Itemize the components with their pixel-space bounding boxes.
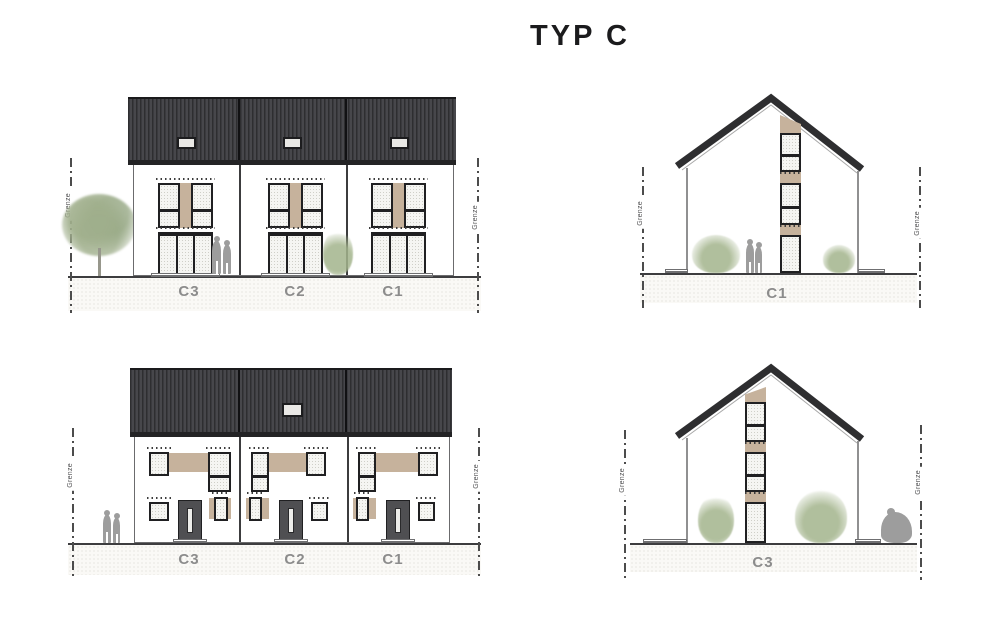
window-pane-divider — [252, 475, 268, 478]
glass-door — [780, 235, 801, 273]
dimension-ticks — [745, 442, 766, 444]
gable-elevation-view-c1: Grenze Grenze C1 — [615, 90, 925, 322]
dimension-ticks — [369, 227, 428, 229]
glass-panel — [195, 236, 211, 273]
unit-label: C3 — [745, 554, 781, 571]
window-pane-divider — [159, 209, 179, 212]
roof-window — [283, 137, 302, 149]
dimension-ticks — [247, 492, 264, 494]
window-strip — [780, 115, 801, 273]
unit-label: C2 — [277, 283, 313, 300]
people-silhouette — [746, 238, 764, 273]
boundary-line — [477, 158, 479, 313]
dimension-ticks — [416, 447, 440, 449]
unit-label: C1 — [375, 551, 411, 568]
window — [149, 502, 169, 521]
door-step — [274, 539, 308, 543]
window — [249, 497, 262, 521]
unit-divider-line — [347, 437, 349, 542]
unit-label: C1 — [759, 285, 795, 302]
dimension-ticks — [780, 225, 801, 227]
window — [404, 183, 426, 228]
boundary-label: Grenze — [472, 202, 479, 233]
window — [418, 452, 438, 476]
terrace-step — [643, 539, 687, 543]
facade-accent-panel — [290, 183, 301, 228]
person — [103, 515, 111, 543]
sliding-glass-door — [158, 232, 213, 275]
window-pane-divider — [209, 475, 230, 478]
unit-label: C1 — [375, 283, 411, 300]
glass-panel — [391, 236, 407, 273]
window — [306, 452, 326, 476]
people-silhouette — [212, 234, 234, 274]
window — [780, 183, 801, 225]
terrace-step — [261, 273, 330, 277]
ground-surface — [68, 276, 481, 311]
dimension-ticks — [156, 178, 215, 180]
facade-accent-panel — [745, 387, 766, 402]
dimension-ticks — [354, 492, 371, 494]
person — [113, 518, 120, 543]
roof-divider-line — [345, 99, 347, 160]
dimension-ticks — [147, 497, 171, 499]
terrace-step — [855, 539, 881, 543]
front-elevation-view: Grenze Grenze — [60, 90, 485, 322]
window-pane-divider — [359, 475, 375, 478]
window-pane-divider — [269, 209, 289, 212]
window-pane-divider — [781, 206, 800, 209]
roof-underside-line — [682, 375, 857, 443]
glass-panel — [288, 236, 304, 273]
shrub — [323, 230, 353, 275]
glass-panel — [408, 236, 424, 273]
roof-underside-line — [682, 105, 857, 173]
entrance-door — [279, 500, 303, 540]
shrub — [692, 235, 740, 273]
dimension-ticks — [304, 447, 328, 449]
window — [149, 452, 169, 476]
shrub — [823, 245, 855, 273]
boundary-line — [72, 428, 74, 578]
window — [371, 183, 393, 228]
dimension-ticks — [780, 172, 801, 174]
tree-canopy — [62, 194, 136, 256]
terrace-step — [151, 273, 220, 277]
gable-roof — [677, 368, 862, 439]
dimension-ticks — [147, 447, 171, 449]
window — [356, 497, 369, 521]
dimension-ticks — [416, 497, 437, 499]
boundary-line — [478, 428, 480, 578]
roof — [128, 97, 456, 165]
dimension-ticks — [156, 227, 215, 229]
person — [746, 244, 754, 273]
facade-accent-panel — [780, 172, 801, 183]
entrance-door — [386, 500, 410, 540]
dimension-ticks — [206, 447, 233, 449]
unit-divider-line — [239, 437, 241, 542]
door-step — [381, 539, 415, 543]
window-strip — [745, 387, 766, 543]
window — [191, 183, 213, 228]
entrance-door — [178, 500, 202, 540]
door-step — [173, 539, 207, 543]
dimension-ticks — [266, 227, 325, 229]
facade-accent-panel — [780, 115, 801, 133]
dimension-ticks — [745, 492, 766, 494]
window — [745, 452, 766, 492]
glass-panel — [270, 236, 286, 273]
dimension-ticks — [309, 497, 330, 499]
facade-accent-panel — [745, 442, 766, 452]
unit-label: C3 — [171, 283, 207, 300]
terrace-step — [364, 273, 433, 277]
window-pane-divider — [781, 154, 800, 157]
dimension-ticks — [266, 178, 325, 180]
dimension-ticks — [356, 447, 378, 449]
window — [311, 502, 328, 521]
window — [214, 497, 228, 521]
dimension-ticks — [369, 178, 428, 180]
boundary-label: Grenze — [473, 461, 480, 492]
glass-panel — [373, 236, 389, 273]
roof-window — [282, 403, 303, 417]
shrub — [698, 495, 734, 543]
person — [755, 247, 762, 273]
window-pane-divider — [746, 474, 765, 477]
drawing-title: TYP C — [460, 20, 700, 53]
sliding-glass-door — [268, 232, 323, 275]
window-pane-divider — [405, 209, 425, 212]
window — [268, 183, 290, 228]
glass-door — [745, 502, 766, 543]
window — [358, 452, 376, 492]
tree-trunk — [98, 248, 101, 276]
facade-accent-panel — [780, 225, 801, 235]
facade-accent-panel — [180, 183, 191, 228]
facade-accent-panel — [393, 183, 404, 228]
gable-elevation-view-c3: Grenze Grenze C3 — [615, 355, 925, 587]
window-pane-divider — [372, 209, 392, 212]
window — [208, 452, 231, 492]
terrace-step — [665, 269, 688, 273]
facade — [134, 437, 450, 543]
gable-roof-and-walls — [615, 355, 925, 587]
gable-roof — [677, 98, 862, 169]
window-pane-divider — [192, 209, 212, 212]
window — [780, 133, 801, 172]
glass-panel — [160, 236, 176, 273]
people-silhouette — [103, 510, 122, 543]
roof-window — [390, 137, 409, 149]
window — [418, 502, 435, 521]
ground-surface — [68, 543, 481, 575]
roof-divider-line — [238, 370, 240, 432]
person — [212, 241, 221, 274]
terrace-step — [858, 269, 885, 273]
window — [745, 402, 766, 442]
roof-window — [177, 137, 196, 149]
window-pane-divider — [302, 209, 322, 212]
unit-divider-line — [239, 165, 241, 275]
shrub — [795, 490, 847, 543]
roof-divider-line — [238, 99, 240, 160]
roof-divider-line — [345, 370, 347, 432]
sliding-glass-door — [371, 232, 426, 275]
person — [223, 245, 231, 274]
drawing-canvas: TYP C Grenze Grenze — [0, 0, 1000, 633]
glass-panel — [305, 236, 321, 273]
window-pane-divider — [746, 424, 765, 427]
dimension-ticks — [212, 492, 230, 494]
facade — [133, 165, 454, 276]
facade-accent-panel — [745, 492, 766, 502]
boundary-label: Grenze — [67, 460, 74, 491]
unit-label: C2 — [277, 551, 313, 568]
window — [251, 452, 269, 492]
dimension-ticks — [249, 447, 271, 449]
unit-label: C3 — [171, 551, 207, 568]
glass-panel — [178, 236, 194, 273]
garden-elevation-view: Grenze Grenze — [60, 355, 485, 587]
roof — [130, 368, 452, 437]
window — [301, 183, 323, 228]
window — [158, 183, 180, 228]
